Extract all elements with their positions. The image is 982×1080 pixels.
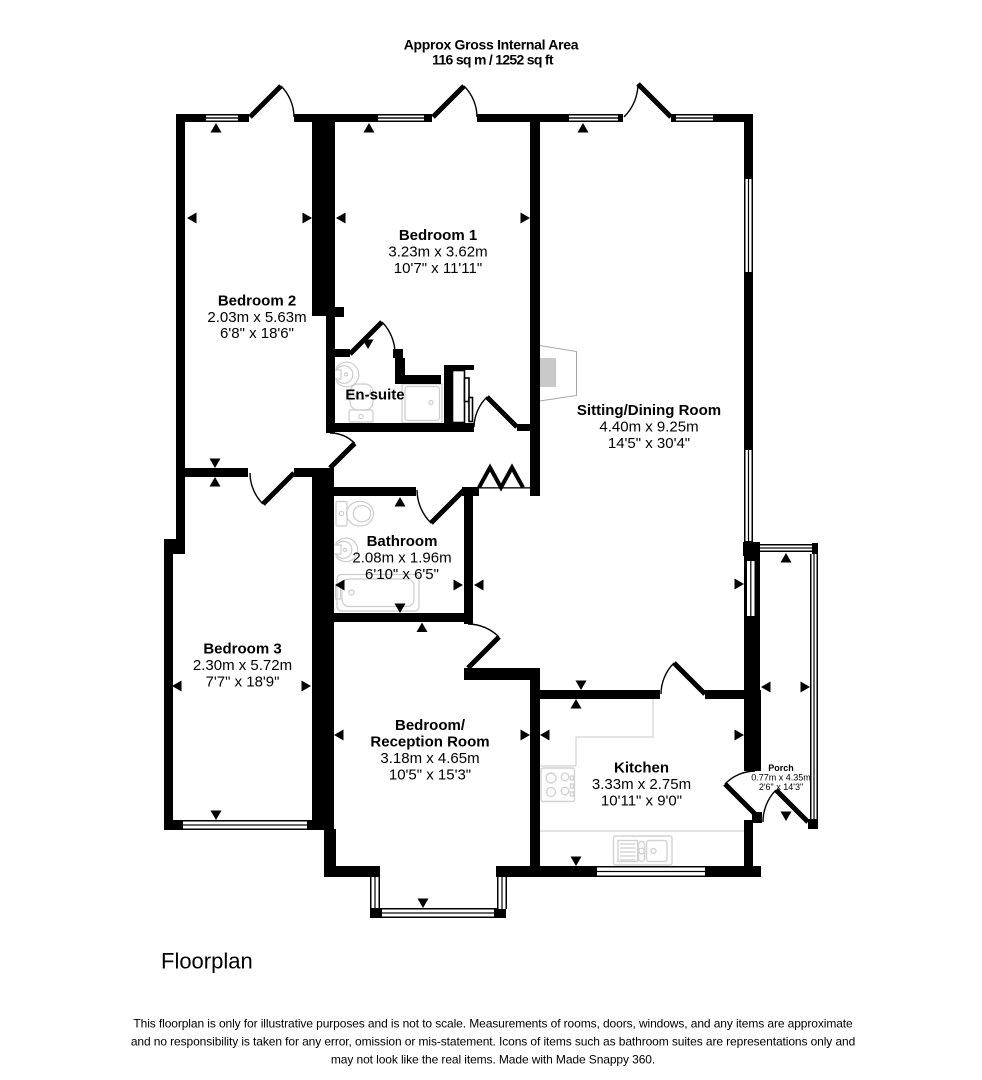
- svg-text:This floorplan is only for ill: This floorplan is only for illustrative …: [133, 1017, 853, 1031]
- svg-text:10'5" x 15'3": 10'5" x 15'3": [389, 767, 471, 784]
- svg-text:7'7" x 18'9": 7'7" x 18'9": [206, 674, 280, 691]
- svg-text:Reception Room: Reception Room: [370, 734, 489, 751]
- svg-text:may not look like the real ite: may not look like the real items. Made w…: [331, 1053, 655, 1067]
- svg-text:4.40m x 9.25m: 4.40m x 9.25m: [599, 419, 698, 436]
- svg-text:6'8" x 18'6": 6'8" x 18'6": [220, 325, 294, 342]
- svg-text:Floorplan: Floorplan: [161, 949, 253, 974]
- svg-text:2'6" x 14'3": 2'6" x 14'3": [759, 782, 803, 792]
- svg-text:10'11" x 9'0": 10'11" x 9'0": [601, 793, 682, 810]
- svg-text:116 sq m / 1252 sq ft: 116 sq m / 1252 sq ft: [432, 52, 554, 68]
- svg-text:Sitting/Dining Room: Sitting/Dining Room: [577, 402, 721, 419]
- svg-text:Approx Gross Internal Area: Approx Gross Internal Area: [404, 37, 579, 53]
- svg-text:En-suite: En-suite: [345, 387, 404, 404]
- svg-text:Bedroom 2: Bedroom 2: [218, 293, 296, 310]
- svg-text:2.30m x 5.72m: 2.30m x 5.72m: [193, 657, 292, 674]
- svg-text:Bedroom 1: Bedroom 1: [399, 227, 477, 244]
- svg-text:Porch: Porch: [768, 763, 794, 773]
- svg-text:14'5" x 30'4": 14'5" x 30'4": [608, 435, 690, 452]
- svg-text:Bedroom/: Bedroom/: [395, 717, 466, 734]
- svg-text:3.33m x 2.75m: 3.33m x 2.75m: [592, 776, 691, 793]
- svg-text:6'10" x 6'5": 6'10" x 6'5": [365, 566, 439, 583]
- svg-text:Kitchen: Kitchen: [614, 760, 669, 777]
- svg-text:3.23m x 3.62m: 3.23m x 3.62m: [388, 244, 487, 261]
- svg-text:and no responsibility is taken: and no responsibility is taken for any e…: [131, 1035, 855, 1049]
- svg-text:3.18m x 4.65m: 3.18m x 4.65m: [380, 750, 479, 767]
- svg-text:10'7" x 11'11": 10'7" x 11'11": [394, 260, 482, 277]
- svg-text:2.03m x 5.63m: 2.03m x 5.63m: [207, 309, 306, 326]
- svg-text:Bathroom: Bathroom: [367, 533, 438, 550]
- svg-text:0.77m x 4.35m: 0.77m x 4.35m: [751, 773, 811, 783]
- svg-text:Bedroom 3: Bedroom 3: [203, 641, 281, 658]
- svg-text:2.08m x 1.96m: 2.08m x 1.96m: [352, 550, 451, 567]
